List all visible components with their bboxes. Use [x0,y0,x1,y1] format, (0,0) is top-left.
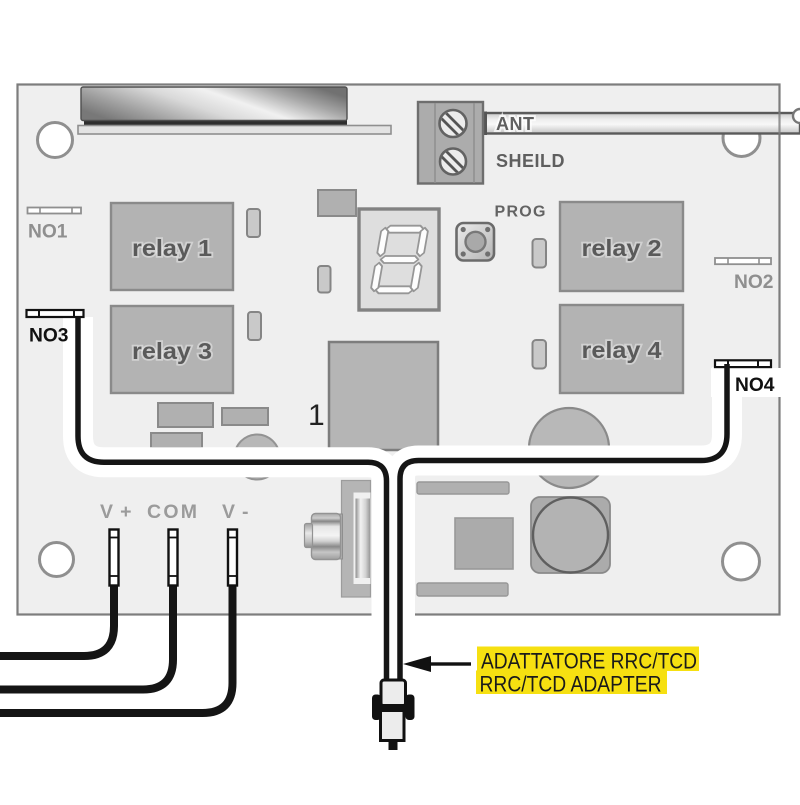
svg-text:1: 1 [308,399,325,432]
svg-text:COM: COM [147,501,197,523]
svg-text:relay 3: relay 3 [132,338,212,364]
svg-text:NO1: NO1 [28,222,68,243]
svg-text:relay 1: relay 1 [132,235,212,261]
svg-text:SHEILD: SHEILD [496,151,565,171]
svg-text:NO4: NO4 [735,375,775,396]
svg-text:RRC/TCD ADAPTER: RRC/TCD ADAPTER [480,672,662,697]
svg-text:NO2: NO2 [734,272,774,293]
svg-text:NO3: NO3 [29,326,69,347]
svg-text:relay 2: relay 2 [582,235,662,261]
svg-text:V -: V - [222,501,249,523]
svg-text:ANT: ANT [496,114,535,134]
svg-text:ADATTATORE RRC/TCD: ADATTATORE RRC/TCD [481,649,697,674]
svg-text:relay 4: relay 4 [582,337,662,363]
svg-text:PROG: PROG [495,204,546,221]
